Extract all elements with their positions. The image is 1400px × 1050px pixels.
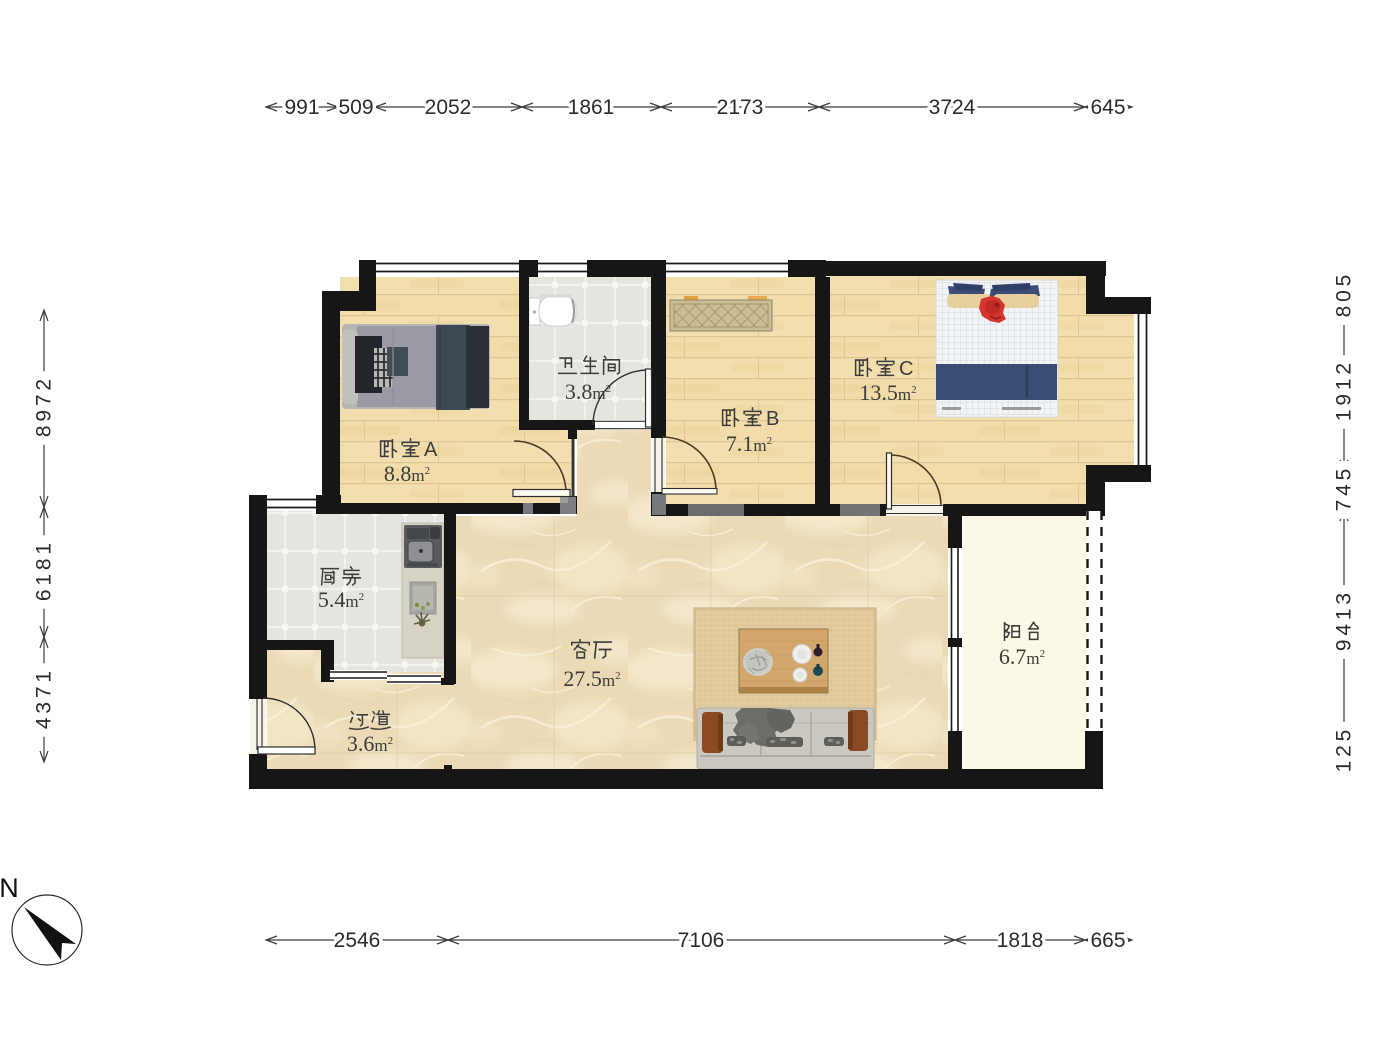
svg-text:8: 8 <box>1333 306 1356 318</box>
svg-text:1861: 1861 <box>568 96 615 119</box>
svg-text:1: 1 <box>1333 608 1356 620</box>
svg-text:7: 7 <box>33 686 56 698</box>
svg-text:3: 3 <box>1333 593 1356 605</box>
svg-text:9: 9 <box>33 410 56 422</box>
svg-text:2: 2 <box>1333 363 1356 375</box>
svg-text:4: 4 <box>1333 484 1356 496</box>
svg-text:1: 1 <box>1333 409 1356 421</box>
svg-text:1: 1 <box>33 574 56 586</box>
svg-text:1: 1 <box>33 671 56 683</box>
svg-text:5: 5 <box>1333 275 1356 287</box>
svg-text:1: 1 <box>33 543 56 555</box>
svg-text:665: 665 <box>1090 929 1125 952</box>
svg-text:8: 8 <box>33 425 56 437</box>
svg-text:1: 1 <box>1333 378 1356 390</box>
svg-text:A: A <box>424 439 438 461</box>
svg-text:9: 9 <box>1333 394 1356 406</box>
svg-text:4: 4 <box>1333 624 1356 636</box>
svg-text:7: 7 <box>33 394 56 406</box>
svg-text:N: N <box>0 873 19 903</box>
svg-text:509: 509 <box>338 96 373 119</box>
svg-text:5: 5 <box>1333 730 1356 742</box>
svg-text:2: 2 <box>1333 745 1356 757</box>
svg-text:B: B <box>766 408 779 430</box>
svg-text:C: C <box>899 358 913 380</box>
svg-text:6: 6 <box>33 589 56 601</box>
svg-text:7106: 7106 <box>678 929 725 952</box>
svg-text:1: 1 <box>1333 761 1356 773</box>
svg-text:2052: 2052 <box>425 96 472 119</box>
svg-text:9: 9 <box>1333 639 1356 651</box>
svg-text:4: 4 <box>33 717 56 729</box>
svg-text:8: 8 <box>33 558 56 570</box>
svg-text:2173: 2173 <box>717 96 764 119</box>
svg-text:5: 5 <box>1333 469 1356 481</box>
svg-text:2546: 2546 <box>334 929 381 952</box>
svg-text:3724: 3724 <box>929 96 976 119</box>
svg-text:645: 645 <box>1090 96 1125 119</box>
svg-text:0: 0 <box>1333 290 1356 302</box>
svg-text:1818: 1818 <box>997 929 1044 952</box>
svg-text:3: 3 <box>33 702 56 714</box>
svg-text:991: 991 <box>284 96 319 119</box>
svg-text:7: 7 <box>1333 500 1356 512</box>
svg-text:2: 2 <box>33 379 56 391</box>
